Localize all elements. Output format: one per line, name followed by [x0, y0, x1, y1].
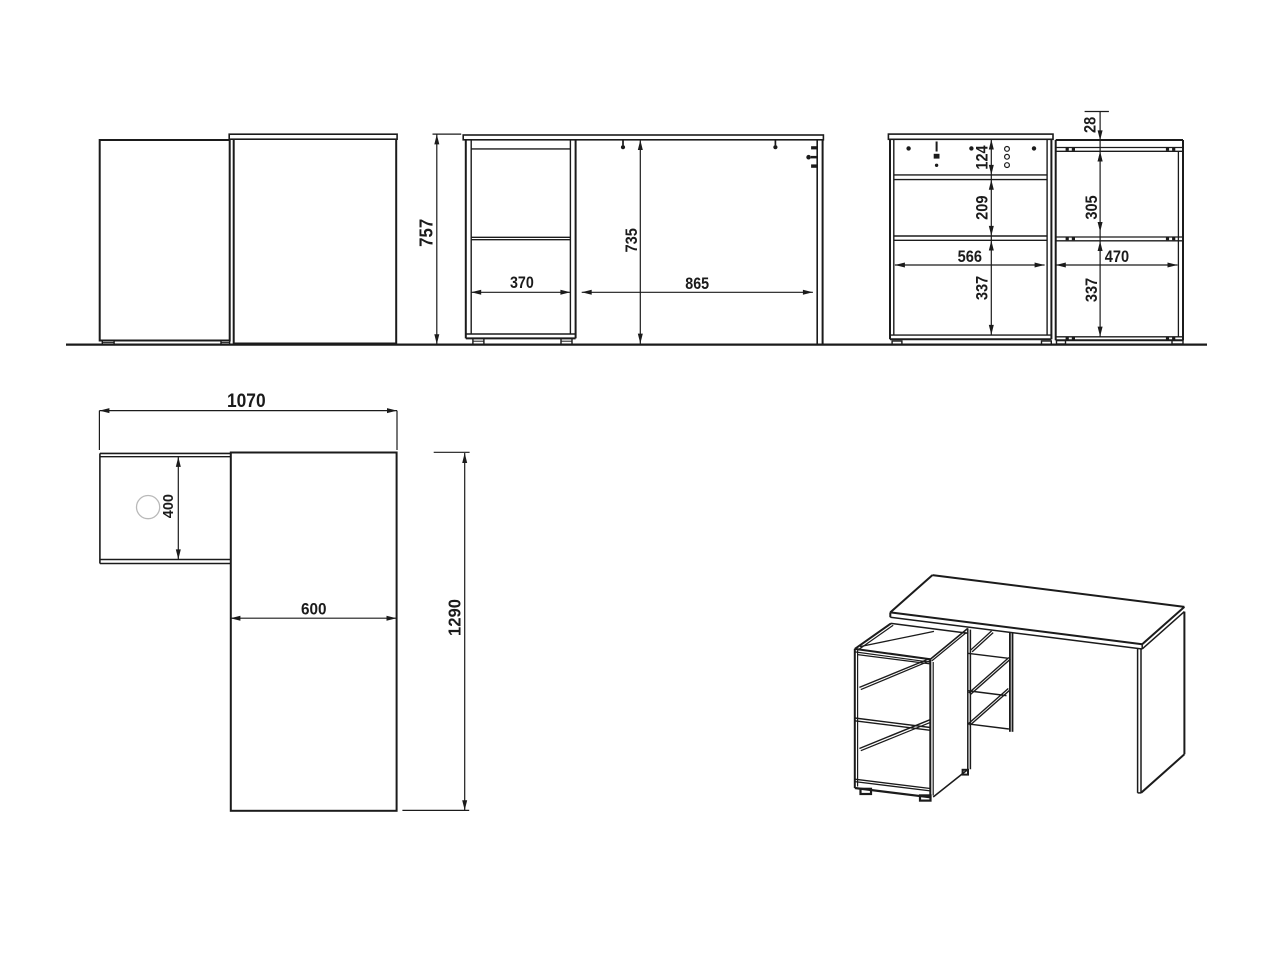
svg-text:470: 470	[1105, 248, 1129, 266]
svg-text:757: 757	[416, 219, 437, 247]
svg-text:735: 735	[623, 228, 641, 253]
svg-text:124: 124	[974, 145, 992, 170]
svg-text:566: 566	[958, 248, 983, 266]
svg-text:1070: 1070	[227, 389, 266, 411]
svg-text:28: 28	[1082, 116, 1100, 133]
svg-text:209: 209	[974, 196, 992, 220]
svg-text:337: 337	[974, 276, 992, 300]
svg-text:305: 305	[1083, 195, 1101, 220]
svg-text:1290: 1290	[445, 599, 464, 636]
svg-text:865: 865	[685, 275, 709, 293]
svg-text:600: 600	[301, 600, 327, 619]
svg-text:337: 337	[1083, 278, 1101, 302]
svg-text:400: 400	[161, 494, 177, 518]
svg-text:370: 370	[510, 274, 534, 292]
